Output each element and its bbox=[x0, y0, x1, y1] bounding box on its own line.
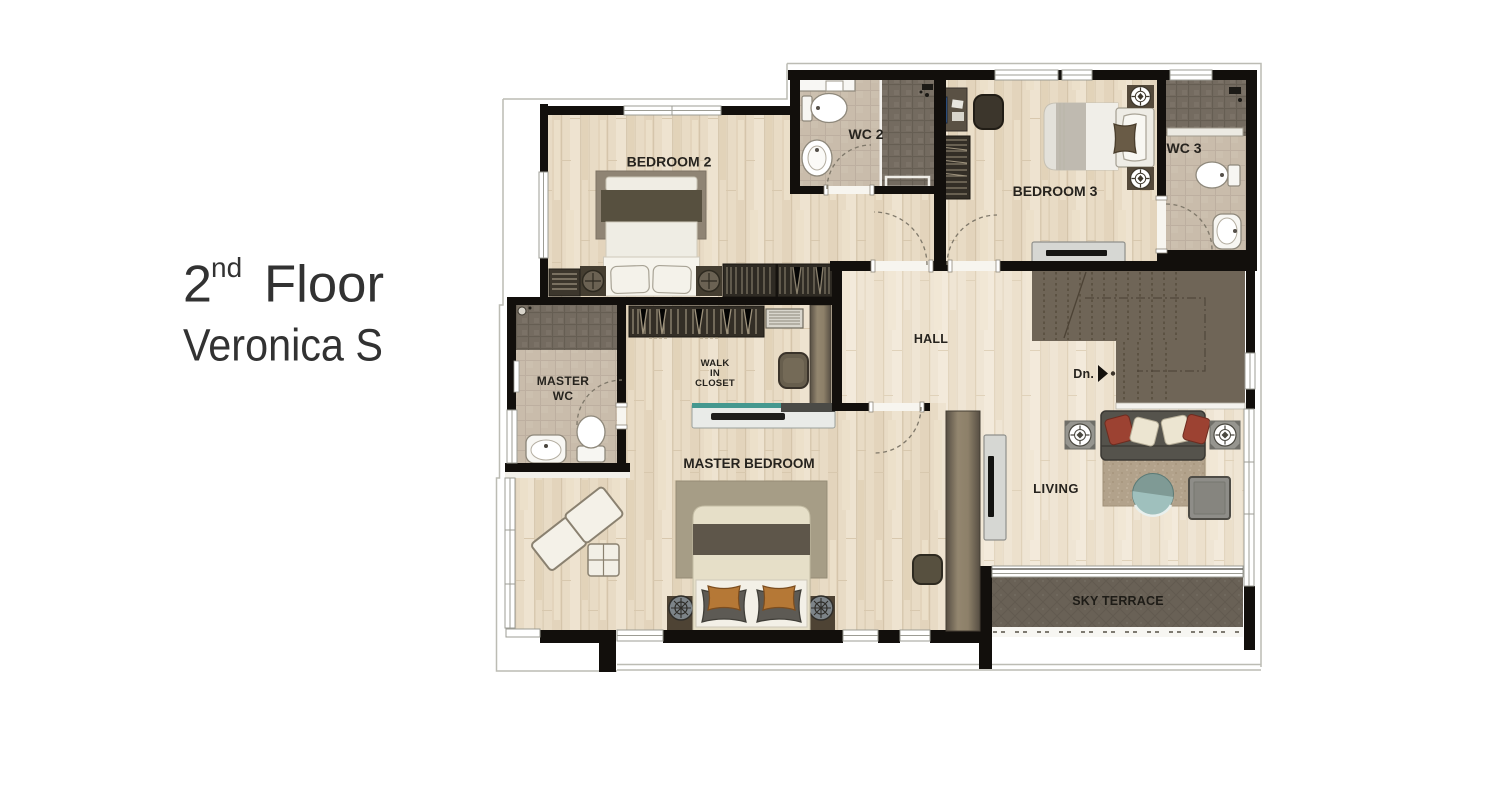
svg-text:WC 2: WC 2 bbox=[849, 126, 884, 142]
svg-text:2: 2 bbox=[183, 256, 212, 314]
svg-text:MASTER BEDROOM: MASTER BEDROOM bbox=[683, 456, 814, 471]
svg-text:BEDROOM 2: BEDROOM 2 bbox=[627, 154, 712, 170]
svg-text:HALL: HALL bbox=[914, 332, 948, 346]
svg-text:Veronica S: Veronica S bbox=[183, 320, 383, 371]
svg-text:SKY TERRACE: SKY TERRACE bbox=[1072, 594, 1164, 608]
svg-text:nd: nd bbox=[211, 252, 242, 283]
svg-text:Floor: Floor bbox=[264, 256, 384, 314]
svg-text:LIVING: LIVING bbox=[1033, 481, 1079, 496]
svg-text:MASTER: MASTER bbox=[537, 374, 589, 388]
svg-text:CLOSET: CLOSET bbox=[695, 378, 735, 389]
svg-text:WC 3: WC 3 bbox=[1167, 140, 1202, 156]
svg-text:WC: WC bbox=[553, 389, 574, 403]
svg-text:Dn.: Dn. bbox=[1073, 367, 1094, 381]
svg-text:BEDROOM 3: BEDROOM 3 bbox=[1013, 183, 1098, 199]
